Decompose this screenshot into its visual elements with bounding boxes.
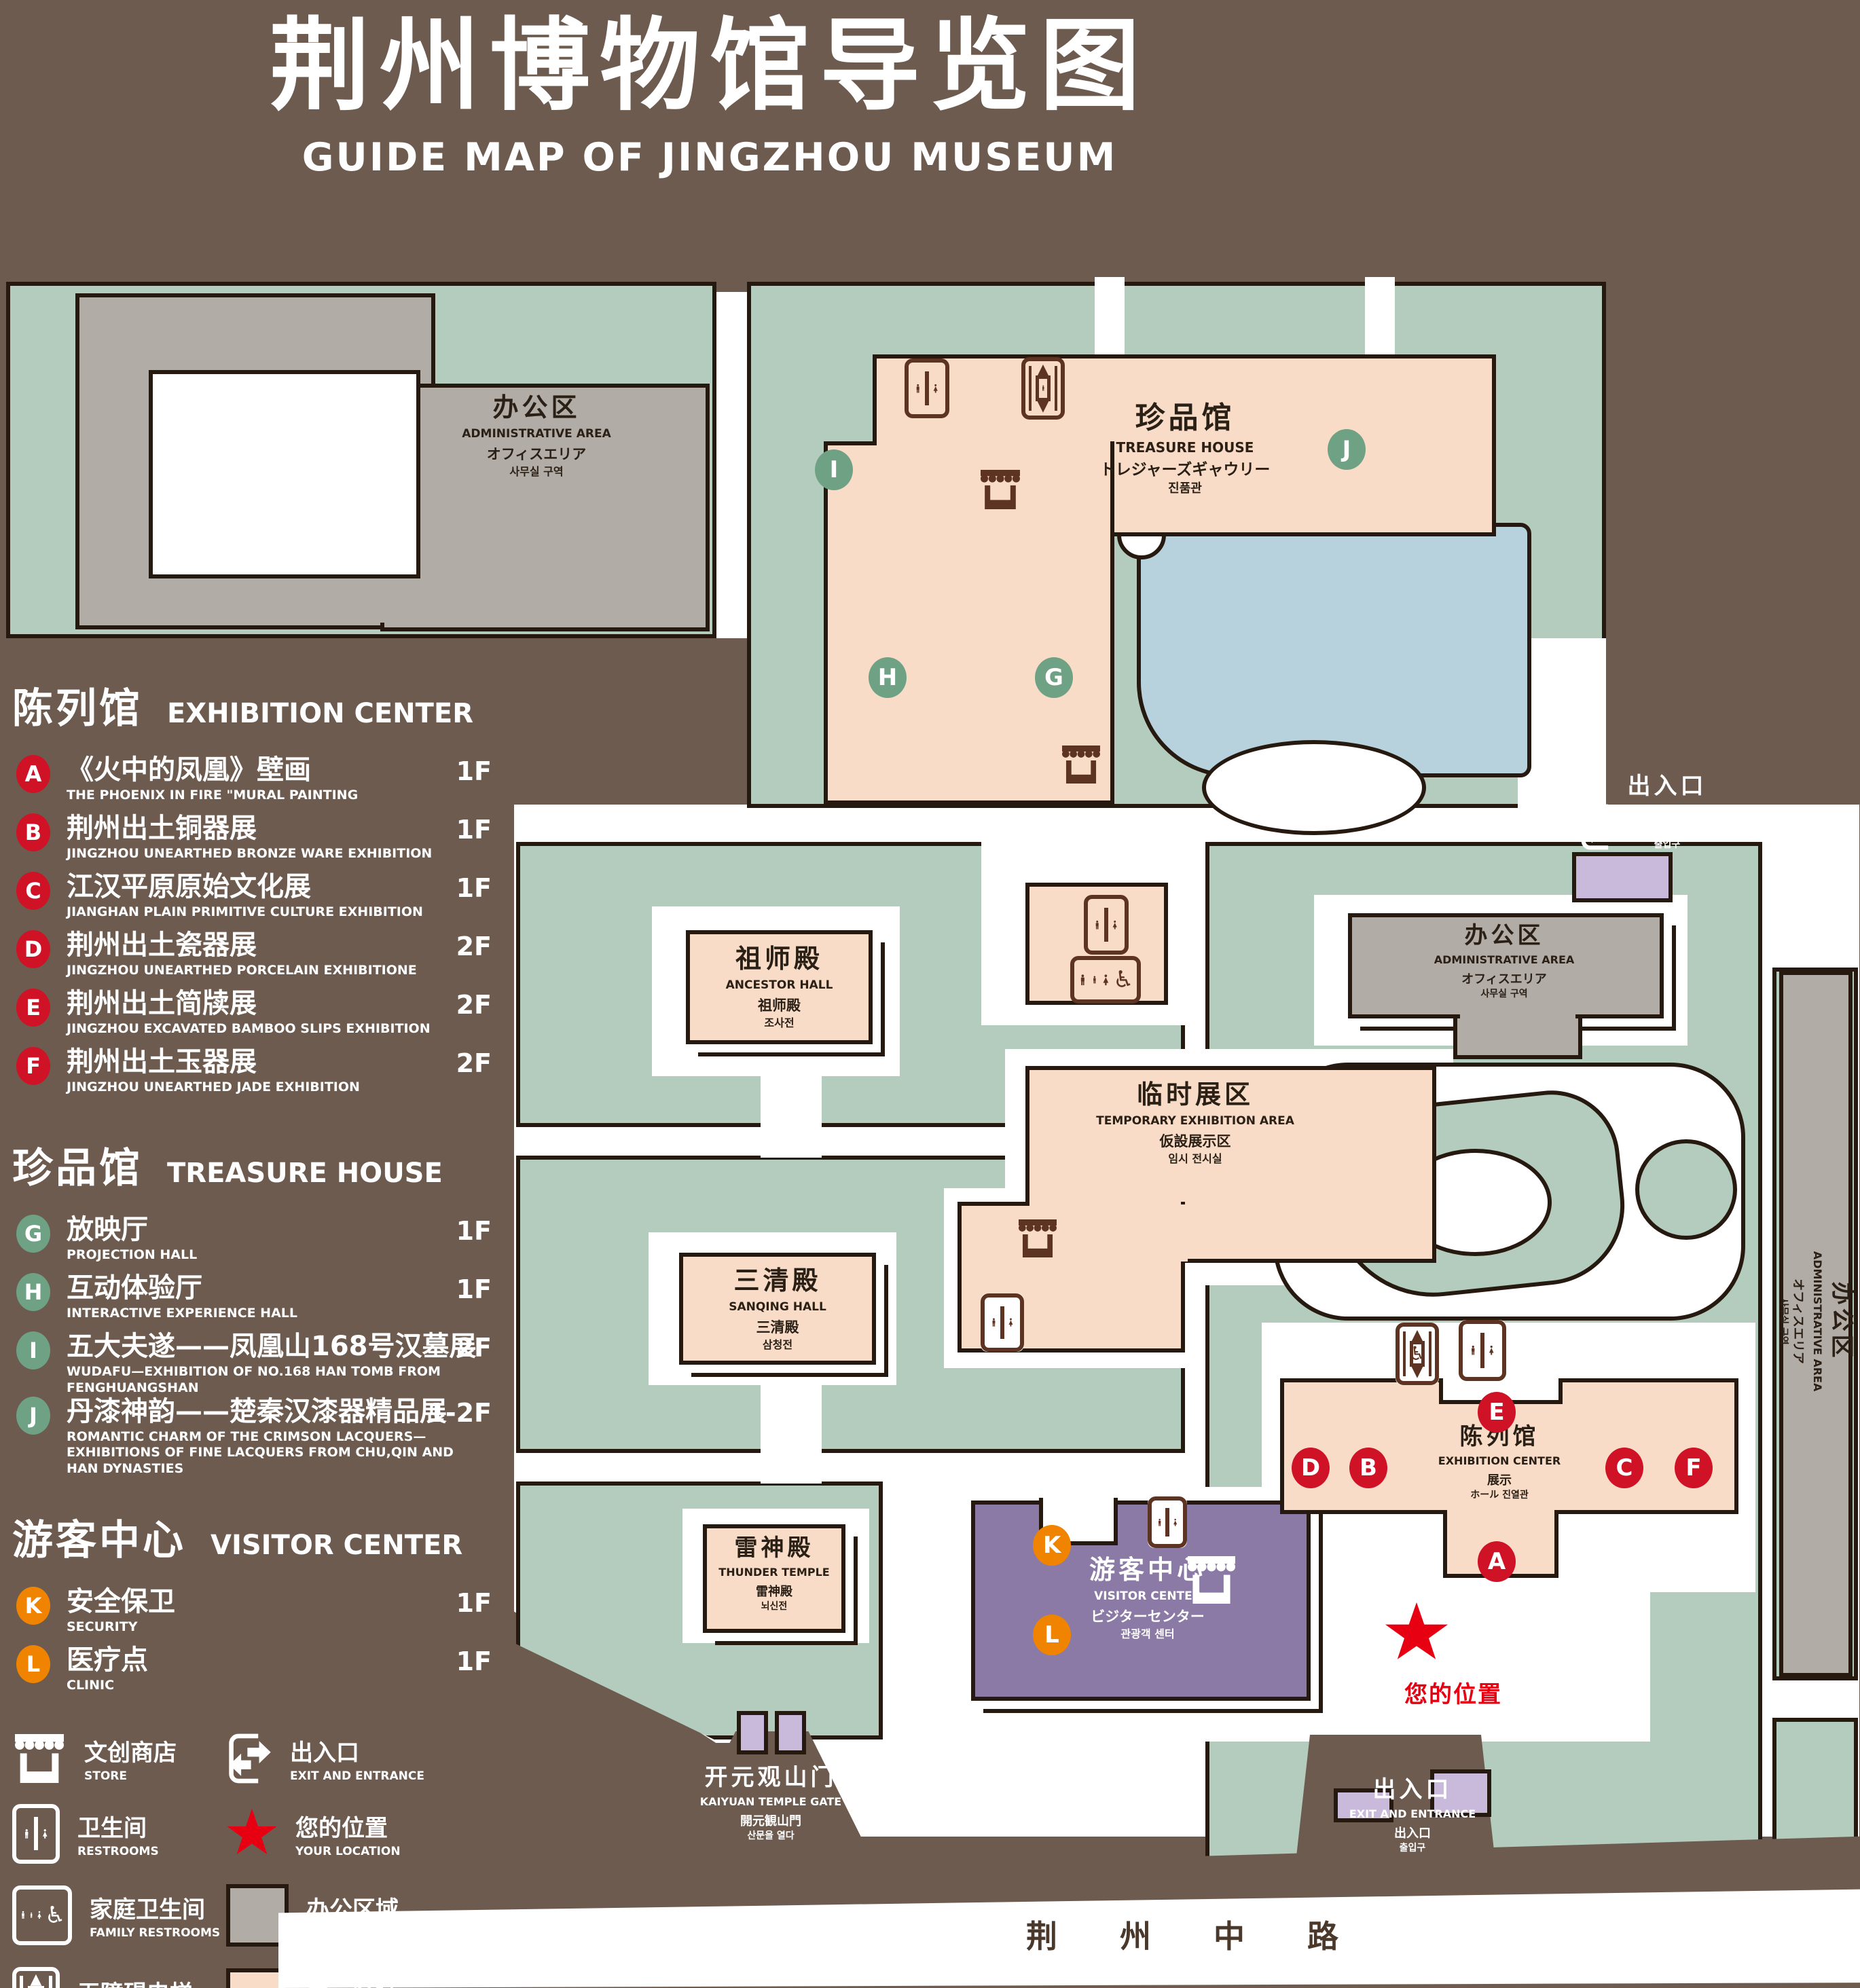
store-icon	[12, 1734, 67, 1783]
symbol-labels: 无障碍电梯ACCESSIBLE ELEVATOR	[77, 1975, 225, 1988]
item-name-zh: 互动体验厅	[67, 1273, 492, 1303]
legend-item-J: J丹漆神韵——楚秦汉漆器精品展ROMANTIC CHARM OF THE CRI…	[12, 1397, 492, 1477]
family-restrooms-icon: ♿	[12, 1885, 72, 1945]
ancestor-hall-label: 祖师殿 ANCESTOR HALL 祖师殿 조사전	[689, 945, 869, 1029]
legend-item-B: B荆州出土铜器展JINGZHOU UNEARTHED BRONZE WARE E…	[12, 813, 492, 872]
restroom-block-building	[1025, 883, 1168, 1005]
road-label: 荆 州 中 路	[991, 1912, 1399, 1957]
item-name-en: JINGZHOU UNEARTHED BRONZE WARE EXHIBITIO…	[67, 846, 474, 862]
admin-mid-seam	[1460, 1012, 1575, 1021]
treasure-house-west-wing	[824, 441, 1114, 805]
legend-section-heading: 游客中心VISITOR CENTER	[12, 1507, 492, 1566]
treasure-house-seam-3	[871, 445, 881, 531]
symbol-name-zh: 文创商店	[84, 1734, 177, 1767]
letter-badge-K: K	[16, 1587, 50, 1625]
legend-section: 陈列馆EXHIBITION CENTERA《火中的凤凰》壁画THE PHOENI…	[12, 676, 492, 1105]
item-name-zh: 医疗点	[67, 1645, 492, 1675]
exhibition-center-label: 陈列馆 EXHIBITION CENTER 展示 ホール 진열관	[1398, 1424, 1601, 1501]
path-slot-north-2	[1365, 277, 1395, 357]
legend-section: 游客中心VISITOR CENTERK安全保卫SECURITY1FL医疗点CLI…	[12, 1507, 492, 1704]
temporary-exhibition-seam-2	[1178, 1204, 1188, 1262]
symbol-labels: 您的位置YOUR LOCATION	[295, 1809, 401, 1858]
accessible-elevator-icon: ▲♿▼	[12, 1967, 60, 1988]
item-name-zh: 五大夫遂——凤凰山168号汉墓展	[67, 1331, 492, 1361]
item-name-zh: 放映厅	[67, 1215, 492, 1245]
letter-badge-I: I	[16, 1331, 50, 1369]
admin-nw-courtyard	[149, 370, 420, 578]
admin-mid-label: 办公区 ADMINISTRATIVE AREA オフィスエリア 사무실 구역	[1402, 923, 1606, 999]
star-icon	[1384, 1602, 1449, 1665]
legend-symbol: ♿家庭卫生间FAMILY RESTROOMS	[12, 1884, 226, 1947]
legend-item-G: G放映厅PROJECTION HALL1F	[12, 1215, 492, 1273]
visitor-center-notch	[1039, 1498, 1118, 1545]
your-location-label: 您的位置	[1379, 1676, 1528, 1709]
gate-pillar-east	[775, 1711, 806, 1754]
symbol-name-en: RESTROOMS	[77, 1845, 159, 1858]
item-name-zh: 荆州出土瓷器展	[67, 930, 492, 960]
letter-badge-D: D	[16, 930, 50, 968]
letter-badge-A: A	[16, 755, 50, 793]
symbol-name-en: FAMILY RESTROOMS	[90, 1926, 220, 1940]
legend-sections: 陈列馆EXHIBITION CENTERA《火中的凤凰》壁画THE PHOENI…	[12, 676, 492, 1704]
legend: 陈列馆EXHIBITION CENTERA《火中的凤凰》壁画THE PHOENI…	[12, 676, 492, 1988]
treasure-house-label: 珍品馆 TREASURE HOUSE トレジャーズギャウリー 진품관	[1066, 402, 1304, 495]
legend-section: 珍品馆TREASURE HOUSEG放映厅PROJECTION HALL1FH互…	[12, 1135, 492, 1477]
item-floor: 1-2F	[427, 1398, 492, 1428]
section-title-en: EXHIBITION CENTER	[167, 698, 473, 729]
item-name-zh: 《火中的凤凰》壁画	[67, 755, 492, 785]
section-title-en: TREASURE HOUSE	[167, 1158, 443, 1189]
item-floor: 1F	[456, 756, 492, 786]
legend-symbol: 文创商店STORE	[12, 1733, 226, 1784]
symbol-name-en: YOUR LOCATION	[295, 1845, 401, 1858]
legend-symbol: 卫生间RESTROOMS	[12, 1804, 226, 1864]
admin-east-label: 办公区 ADMINISTRATIVE AREA オフィスエリア 사무실 구역	[1778, 1179, 1854, 1464]
treasure-house-seam-2	[877, 528, 1110, 540]
legend-symbol: 您的位置YOUR LOCATION	[226, 1804, 492, 1864]
item-name-en: JINGZHOU EXCAVATED BAMBOO SLIPS EXHIBITI…	[67, 1021, 474, 1037]
thunder-temple-label: 雷神殿 THUNDER TEMPLE 雷神殿 뇌신전	[706, 1536, 842, 1612]
your-location-star	[1384, 1602, 1449, 1665]
legend-section-heading: 珍品馆TREASURE HOUSE	[12, 1135, 492, 1194]
symbol-labels: 卫生间RESTROOMS	[77, 1809, 159, 1858]
court-your-location	[1331, 1589, 1650, 1742]
legend-item-L: L医疗点CLINIC1F	[12, 1645, 492, 1704]
item-name-en: WUDAFU—EXHIBITION OF NO.168 HAN TOMB FRO…	[67, 1364, 474, 1397]
legend-item-A: A《火中的凤凰》壁画THE PHOENIX IN FIRE "MURAL PAI…	[12, 755, 492, 813]
legend-item-F: F荆州出土玉器展JINGZHOU UNEARTHED JADE EXHIBITI…	[12, 1047, 492, 1105]
item-floor: 1F	[456, 873, 492, 903]
legend-item-K: K安全保卫SECURITY1F	[12, 1587, 492, 1645]
item-name-zh: 安全保卫	[67, 1587, 492, 1617]
symbol-name-zh: 您的位置	[295, 1809, 401, 1843]
item-floor: 1F	[456, 1588, 492, 1618]
letter-badge-B: B	[16, 813, 50, 851]
section-title-zh: 陈列馆	[12, 676, 143, 735]
item-floor: 1F	[456, 1274, 492, 1304]
item-floor: 2F	[456, 932, 492, 961]
service-building-north	[1572, 852, 1673, 902]
item-floor: 1F	[456, 1646, 492, 1676]
item-floor: 2F	[456, 1048, 492, 1078]
letter-badge-H: H	[16, 1273, 50, 1311]
symbol-name-zh: 家庭卫生间	[90, 1891, 220, 1924]
symbol-name-zh: 出入口	[290, 1734, 424, 1767]
letter-badge-E: E	[16, 989, 50, 1027]
item-name-en: INTERACTIVE EXPERIENCE HALL	[67, 1306, 474, 1322]
letter-badge-G: G	[16, 1215, 50, 1253]
temporary-exhibition-label: 临时展区 TEMPORARY EXHIBITION AREA 仮設展示区 임시 …	[1059, 1081, 1331, 1164]
item-name-en: CLINIC	[67, 1678, 474, 1694]
title-chinese: 荆州博物馆导览图	[0, 11, 1419, 122]
item-name-en: JIANGHAN PLAIN PRIMITIVE CULTURE EXHIBIT…	[67, 904, 474, 921]
legend-symbol: ▲♿▼无障碍电梯ACCESSIBLE ELEVATOR	[12, 1967, 226, 1988]
item-name-zh: 荆州出土铜器展	[67, 813, 492, 843]
south-exit-label: 出入口 EXIT AND ENTRANCE 出入口 출입구	[1324, 1778, 1501, 1854]
item-name-en: JINGZHOU UNEARTHED JADE EXHIBITION	[67, 1080, 474, 1096]
path-below-sanqing	[761, 1358, 822, 1484]
item-name-en: PROJECTION HALL	[67, 1247, 474, 1264]
legend-item-H: H互动体验厅INTERACTIVE EXPERIENCE HALL1F	[12, 1273, 492, 1331]
item-floor: 1F	[456, 815, 492, 845]
letter-badge-C: C	[16, 872, 50, 910]
symbol-name-zh: 卫生间	[77, 1809, 159, 1843]
legend-item-D: D荆州出土瓷器展JINGZHOU UNEARTHED PORCELAIN EXH…	[12, 930, 492, 989]
item-name-zh: 荆州出土玉器展	[67, 1047, 492, 1077]
item-name-zh: 江汉平原原始文化展	[67, 872, 492, 902]
your-location-icon	[226, 1809, 278, 1859]
admin-nw-label: 办公区 ADMINISTRATIVE AREA オフィスエリア 사무실 구역	[435, 394, 638, 477]
letter-badge-J: J	[16, 1397, 50, 1435]
legend-item-I: I五大夫遂——凤凰山168号汉墓展WUDAFU—EXHIBITION OF NO…	[12, 1331, 492, 1397]
path-slot-north-1	[1095, 277, 1125, 357]
item-floor: 1F	[456, 1216, 492, 1246]
legend-item-E: E荆州出土简牍展JINGZHOU EXCAVATED BAMBOO SLIPS …	[12, 989, 492, 1047]
item-name-en: JINGZHOU UNEARTHED PORCELAIN EXHIBITIONE	[67, 963, 474, 979]
symbol-name-en: EXIT AND ENTRANCE	[290, 1769, 424, 1783]
legend-section-heading: 陈列馆EXHIBITION CENTER	[12, 676, 492, 735]
title-english: GUIDE MAP OF JINGZHOU MUSEUM	[0, 135, 1419, 180]
section-title-zh: 游客中心	[12, 1507, 186, 1566]
symbol-labels: 出入口EXIT AND ENTRANCE	[290, 1734, 424, 1783]
letter-badge-F: F	[16, 1047, 50, 1085]
pond-inlet	[1202, 740, 1426, 835]
pond	[1137, 523, 1531, 777]
sanqing-hall-label: 三清殿 SANQING HALL 三清殿 삼청전	[686, 1267, 869, 1350]
temporary-exhibition-seam-1	[1029, 1198, 1181, 1266]
guide-map-poster: 荆州博物馆导览图 GUIDE MAP OF JINGZHOU MUSEUM 办公…	[0, 0, 1860, 1988]
item-name-en: THE PHOENIX IN FIRE "MURAL PAINTING	[67, 788, 474, 804]
item-name-en: SECURITY	[67, 1619, 474, 1636]
symbol-name-en: STORE	[84, 1769, 177, 1783]
north-exit-label: 出入口 EXIT AND ENTRANCE 出入口 출입구	[1582, 774, 1752, 850]
kaiyuan-gate-label: 开元观山门 KAIYUAN TEMPLE GATE 開元観山門 산문을 열다	[682, 1765, 859, 1841]
visitor-center-label: 游客中心 VISITOR CENTER ビジターセンター 관광객 센터	[1046, 1556, 1250, 1640]
symbol-labels: 家庭卫生间FAMILY RESTROOMS	[90, 1891, 220, 1940]
page-title: 荆州博物馆导览图 GUIDE MAP OF JINGZHOU MUSEUM	[0, 11, 1419, 180]
legend-symbol: 出入口EXIT AND ENTRANCE	[226, 1733, 492, 1784]
section-title-en: VISITOR CENTER	[211, 1530, 462, 1561]
item-name-en: ROMANTIC CHARM OF THE CRIMSON LACQUERS—E…	[67, 1429, 474, 1477]
gate-pillar-west	[737, 1711, 768, 1754]
symbol-name-zh: 无障碍电梯	[77, 1975, 225, 1988]
symbol-labels: 文创商店STORE	[84, 1734, 177, 1783]
item-floor: 2F	[456, 1333, 492, 1363]
exit-icon	[226, 1733, 272, 1784]
letter-badge-L: L	[16, 1645, 50, 1683]
section-title-zh: 珍品馆	[12, 1135, 143, 1194]
legend-item-C: C江汉平原原始文化展JIANGHAN PLAIN PRIMITIVE CULTU…	[12, 872, 492, 930]
restrooms-icon	[12, 1804, 60, 1864]
item-name-zh: 荆州出土简牍展	[67, 989, 492, 1018]
item-floor: 2F	[456, 990, 492, 1020]
garden-island	[1635, 1139, 1737, 1240]
